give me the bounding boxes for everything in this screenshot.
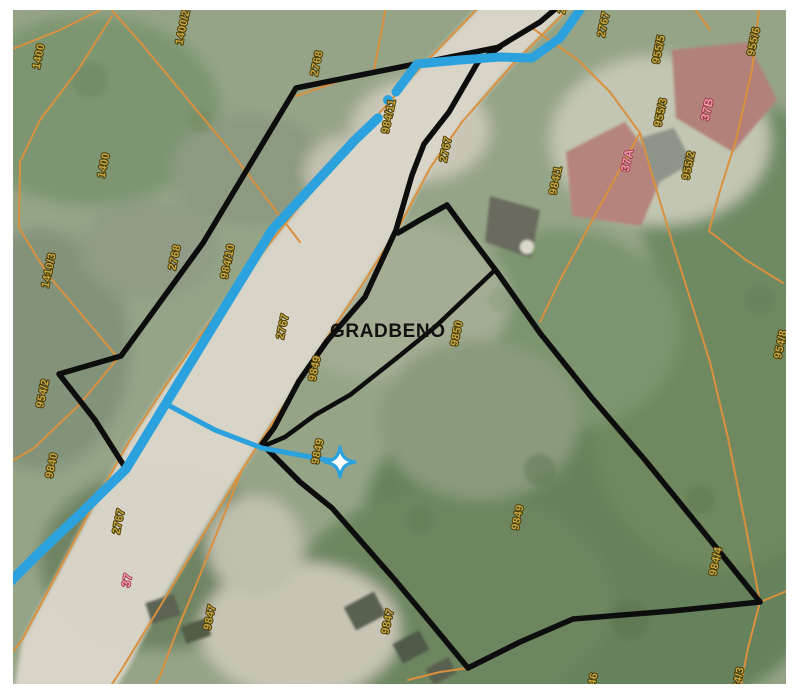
map-page: 14001400/214001410/32768984/112767272767… [0, 0, 794, 690]
gradbeno-annotation: GRADBENO [330, 321, 446, 342]
map-canvas[interactable]: 14001400/214001410/32768984/112767272767… [0, 0, 794, 690]
house-number-label: 37 [119, 572, 136, 589]
